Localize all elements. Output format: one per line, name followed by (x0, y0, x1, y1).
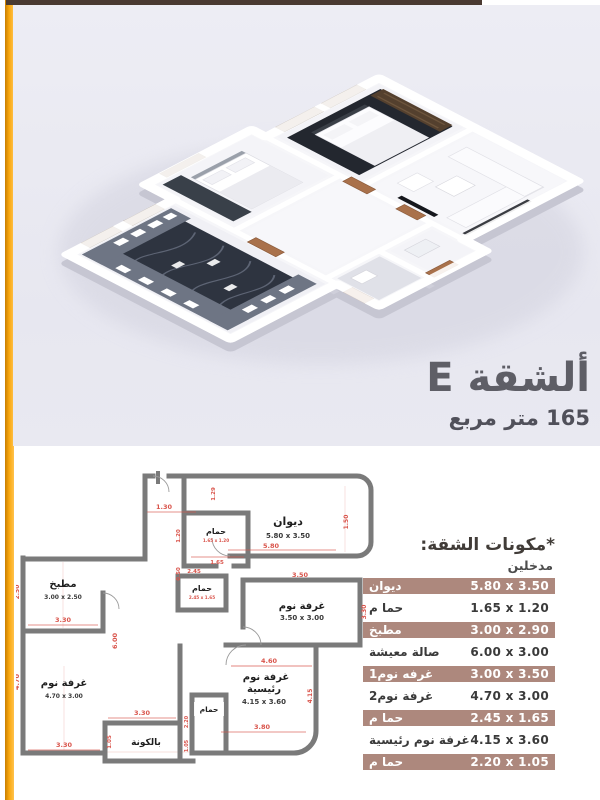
svg-text:1.65: 1.65 (210, 560, 224, 566)
room-size: 4.70 x 3.00 (470, 689, 549, 703)
room-diwan: ديوان (273, 515, 303, 528)
svg-text:2.50: 2.50 (16, 585, 21, 600)
components-subtitle: مدخلين (363, 558, 553, 573)
svg-text:4.15: 4.15 (307, 689, 314, 704)
svg-text:5.80: 5.80 (263, 542, 280, 550)
apartment-area: 165 متر مربع (449, 406, 590, 430)
svg-text:3.30: 3.30 (134, 709, 151, 717)
svg-text:3.30: 3.30 (56, 741, 73, 749)
svg-text:3.30: 3.30 (55, 616, 72, 624)
component-row: 2.45 x 1.65 حما م (363, 710, 555, 726)
room-bedroom2: غرفة نوم (41, 678, 88, 689)
room-bath2: حمام (192, 584, 212, 593)
room-name: ديوان (369, 579, 402, 593)
room-bath1: حمام (206, 527, 226, 536)
component-row: 4.15 x 3.60 غرفة نوم رئيسية (363, 732, 555, 748)
room-size: 6.00 x 3.00 (470, 645, 549, 659)
room-name: حما م (369, 601, 403, 615)
svg-text:1.29: 1.29 (211, 487, 217, 501)
room-kitchen: مطبخ (49, 579, 76, 590)
svg-text:1.65 x 1.20: 1.65 x 1.20 (203, 538, 229, 543)
room-size: 3.00 x 2.90 (470, 623, 549, 637)
svg-text:0.50: 0.50 (176, 567, 182, 581)
floor-plan-2d: ديوان 5.80 x 3.50 حمام 1.65 x 1.20 حمام … (16, 470, 376, 772)
svg-text:1.30: 1.30 (156, 503, 173, 511)
room-name: حما م (369, 755, 403, 769)
svg-text:3.00 x 2.50: 3.00 x 2.50 (44, 594, 82, 601)
svg-text:3.50: 3.50 (292, 571, 309, 579)
svg-text:رئيسية: رئيسية (247, 684, 281, 695)
top-brown-bar (6, 0, 482, 5)
components-panel: *مكونات الشقة: مدخلين 5.80 x 3.50 ديوان … (363, 535, 555, 776)
svg-text:4.70 x 3.00: 4.70 x 3.00 (45, 693, 83, 700)
apartment-title: ألشقة E (426, 356, 590, 400)
svg-text:2.45 x 1.65: 2.45 x 1.65 (189, 595, 215, 600)
room-size: 1.65 x 1.20 (470, 601, 549, 615)
room-bath3: حمام (200, 705, 219, 714)
room-size: 2.45 x 1.65 (470, 711, 549, 725)
svg-text:6.00: 6.00 (111, 633, 119, 650)
svg-text:4.15 x 3.60: 4.15 x 3.60 (242, 698, 286, 706)
component-row: 4.70 x 3.00 غرفة نوم2 (363, 688, 555, 704)
room-size: 4.15 x 3.60 (470, 733, 549, 747)
components-title: *مكونات الشقة: (363, 535, 555, 555)
svg-text:3.80: 3.80 (254, 723, 271, 731)
room-size: 2.20 x 1.05 (470, 755, 549, 769)
svg-text:3.50 x 3.00: 3.50 x 3.00 (280, 614, 324, 622)
room-name: صالة معيشة (369, 645, 440, 659)
component-row: 1.65 x 1.20 حما م (363, 600, 555, 616)
svg-text:4.70: 4.70 (16, 674, 21, 691)
brochure-page: { "page": { "accent_orange": "#f9a70d", … (0, 0, 600, 800)
room-name: حما م (369, 711, 403, 725)
svg-text:5.80 x 3.50: 5.80 x 3.50 (266, 532, 310, 540)
components-list: 5.80 x 3.50 ديوان 1.65 x 1.20 حما م 3.00… (363, 578, 555, 770)
svg-text:1.05: 1.05 (184, 739, 190, 752)
component-row: 2.20 x 1.05 حما م (363, 754, 555, 770)
component-row: 3.00 x 2.90 مطبخ (363, 622, 555, 638)
room-name: غرفة نوم2 (369, 689, 433, 703)
room-name: مطبخ (369, 623, 402, 637)
svg-text:2.20: 2.20 (184, 715, 190, 728)
room-name: غرفة نوم رئيسية (369, 733, 470, 747)
component-row: 5.80 x 3.50 ديوان (363, 578, 555, 594)
room-master: غرفة نوم (243, 672, 290, 683)
svg-text:2.45: 2.45 (187, 569, 201, 575)
svg-text:1.50: 1.50 (343, 515, 350, 530)
svg-text:4.60: 4.60 (261, 657, 278, 665)
svg-text:1.20: 1.20 (176, 529, 182, 543)
room-balcony: بالكونة (131, 738, 161, 748)
svg-text:1.05: 1.05 (107, 735, 113, 749)
component-row: 6.00 x 3.00 صالة معيشة (363, 644, 555, 660)
component-row: 3.00 x 3.50 غرفه نوم1 (363, 666, 555, 682)
room-size: 3.00 x 3.50 (470, 667, 549, 681)
room-size: 5.80 x 3.50 (470, 579, 549, 593)
room-name: غرفه نوم1 (369, 667, 433, 681)
room-bedroom1: غرفة نوم (279, 601, 326, 612)
